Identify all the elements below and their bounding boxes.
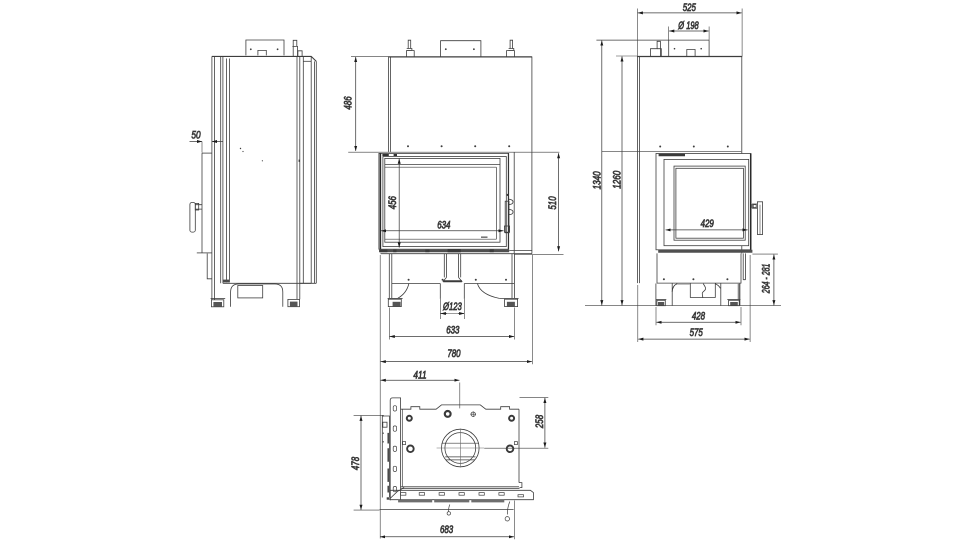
svg-text:1340: 1340 bbox=[592, 171, 604, 189]
svg-text:428: 428 bbox=[692, 311, 705, 323]
svg-text:478: 478 bbox=[350, 457, 362, 470]
svg-text:1260: 1260 bbox=[611, 171, 623, 189]
svg-text:258: 258 bbox=[534, 415, 546, 429]
svg-text:50: 50 bbox=[191, 130, 200, 142]
svg-text:264 - 281: 264 - 281 bbox=[761, 264, 773, 294]
svg-text:486: 486 bbox=[342, 96, 354, 109]
svg-text:575: 575 bbox=[690, 327, 703, 339]
svg-text:633: 633 bbox=[446, 324, 459, 336]
svg-text:429: 429 bbox=[701, 218, 714, 230]
svg-text:780: 780 bbox=[447, 348, 460, 360]
svg-text:456: 456 bbox=[387, 196, 399, 209]
svg-text:634: 634 bbox=[437, 219, 450, 231]
svg-text:Ø 198: Ø 198 bbox=[678, 20, 699, 32]
svg-text:510: 510 bbox=[547, 196, 559, 209]
svg-text:683: 683 bbox=[440, 524, 453, 536]
svg-text:Ø123: Ø123 bbox=[442, 301, 462, 313]
svg-text:411: 411 bbox=[413, 370, 426, 382]
svg-text:525: 525 bbox=[683, 2, 696, 14]
